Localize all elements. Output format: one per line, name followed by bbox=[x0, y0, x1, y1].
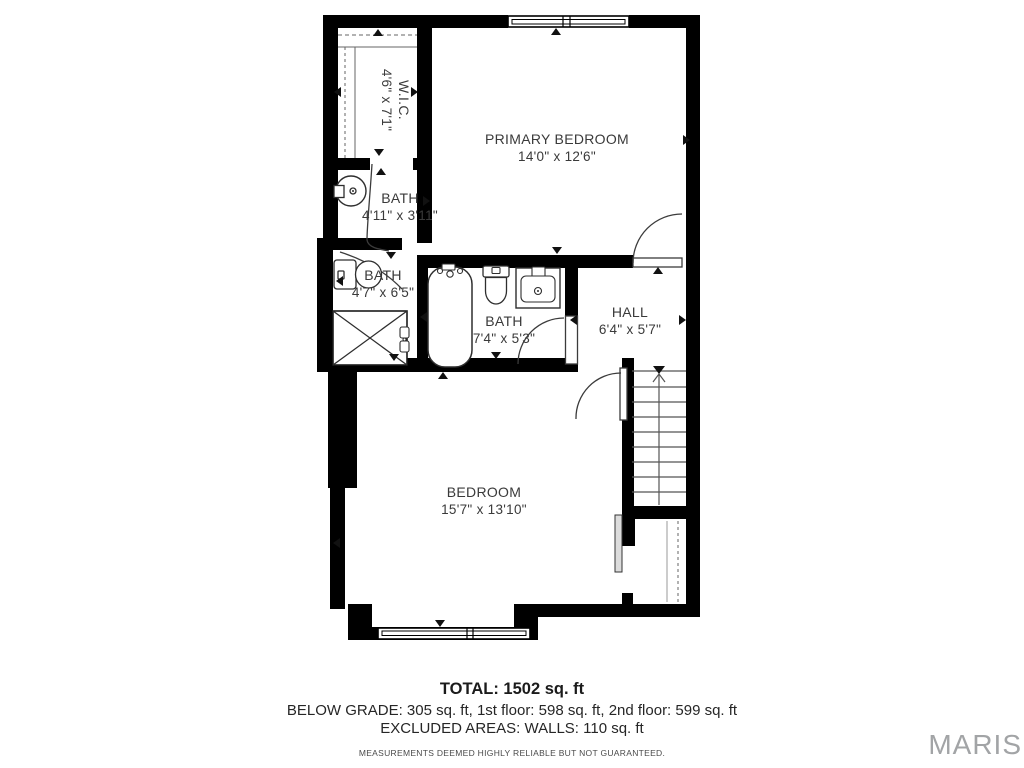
room-label-bath-main: BATH 7'4" x 5'3" bbox=[473, 313, 535, 347]
room-dims: 4'11" x 3'11" bbox=[362, 207, 438, 224]
door-bedroom bbox=[576, 368, 627, 420]
toilet-main-bath bbox=[483, 266, 509, 304]
disclaimer-text: MEASUREMENTS DEEMED HIGHLY RELIABLE BUT … bbox=[0, 748, 1024, 758]
stairs-direction-arrow bbox=[653, 366, 665, 374]
area-breakdown-text: BELOW GRADE: 305 sq. ft, 1st floor: 598 … bbox=[0, 702, 1024, 719]
room-name: PRIMARY BEDROOM bbox=[485, 131, 629, 148]
room-name: HALL bbox=[599, 304, 661, 321]
excluded-areas-text: EXCLUDED AREAS: WALLS: 110 sq. ft bbox=[0, 720, 1024, 737]
room-label-hall: HALL 6'4" x 5'7" bbox=[599, 304, 661, 338]
window-bay bbox=[378, 628, 530, 639]
door-primary-bedroom bbox=[633, 214, 682, 267]
sliding-door-panel bbox=[615, 515, 622, 572]
room-name: W.I.C. bbox=[395, 69, 412, 131]
room-label-bedroom: BEDROOM 15'7" x 13'10" bbox=[441, 484, 527, 518]
room-dims: 14'0" x 12'6" bbox=[485, 148, 629, 165]
room-label-bath-upper: BATH 4'11" x 3'11" bbox=[362, 190, 438, 224]
room-name: BATH bbox=[473, 313, 535, 330]
room-dims: 4'6" x 7'1" bbox=[378, 69, 395, 131]
room-name: BATH bbox=[362, 190, 438, 207]
room-dims: 6'4" x 5'7" bbox=[599, 321, 661, 338]
total-area-text: TOTAL: 1502 sq. ft bbox=[0, 680, 1024, 699]
floorplan-drawing bbox=[0, 0, 1024, 768]
room-dims: 15'7" x 13'10" bbox=[441, 501, 527, 518]
maris-watermark: MARIS bbox=[928, 729, 1022, 761]
room-dims: 4'7" x 6'5" bbox=[352, 284, 414, 301]
room-label-wic: W.I.C. 4'6" x 7'1" bbox=[378, 69, 412, 131]
stairs bbox=[632, 366, 686, 505]
floorplan-page: W.I.C. 4'6" x 7'1" BATH 4'11" x 3'11" PR… bbox=[0, 0, 1024, 768]
room-label-bath-left: BATH 4'7" x 6'5" bbox=[352, 267, 414, 301]
window-top bbox=[508, 16, 629, 27]
room-name: BEDROOM bbox=[441, 484, 527, 501]
room-dims: 7'4" x 5'3" bbox=[473, 330, 535, 347]
bathtub bbox=[428, 264, 472, 367]
shower-box bbox=[333, 311, 409, 365]
room-name: BATH bbox=[352, 267, 414, 284]
room-label-primary-bedroom: PRIMARY BEDROOM 14'0" x 12'6" bbox=[485, 131, 629, 165]
vanity-sink bbox=[516, 267, 560, 308]
